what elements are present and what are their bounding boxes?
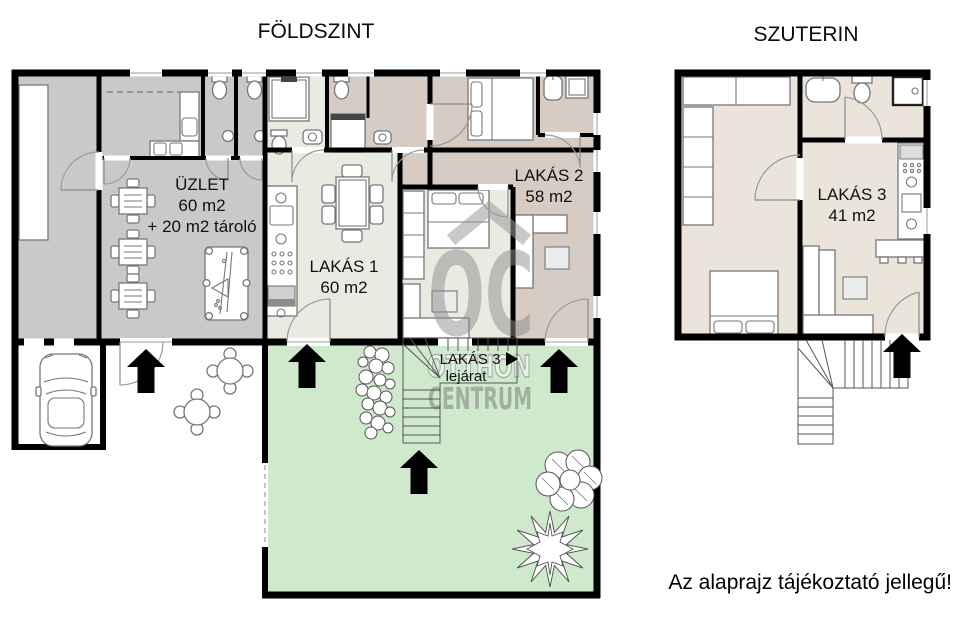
flat1-area: 60 m2 <box>320 278 367 297</box>
basement-plan <box>678 73 931 444</box>
basement-bed <box>710 271 778 337</box>
flat2-name: LAKÁS 2 <box>515 166 584 185</box>
watermark-logo: OC OTTHON CENTRUM <box>427 209 534 417</box>
floorplan-page: OC OTTHON CENTRUM LAKÁS 3 lejárat F <box>0 0 960 622</box>
disclaimer-note: Az alaprajz tájékoztató jellegű! <box>668 571 952 594</box>
pool-table <box>203 247 250 320</box>
flat2-area: 58 m2 <box>525 187 572 206</box>
flat1-name: LAKÁS 1 <box>310 257 379 276</box>
terrace-table <box>207 348 253 394</box>
floorplan-drawing: OC OTTHON CENTRUM LAKÁS 3 lejárat F <box>0 0 960 622</box>
flat3-name: LAKÁS 3 <box>818 185 887 204</box>
terrace-table <box>174 389 220 435</box>
garage <box>19 85 48 240</box>
flat3-stairs-text: lejárat <box>446 368 488 385</box>
entrance-arrow-shop-icon <box>127 349 165 393</box>
basement-stairs <box>798 340 908 444</box>
flat1-kitchen <box>266 186 297 317</box>
shop-note: + 20 m2 tároló <box>147 217 256 236</box>
watermark-monogram: OC <box>428 229 534 363</box>
watermark-word-2: CENTRUM <box>428 382 532 417</box>
flat3-stairs-name: LAKÁS 3 <box>440 351 501 368</box>
shop-area: 60 m2 <box>178 196 225 215</box>
flat2-bed <box>468 78 533 140</box>
basement-title: SZUTERIN <box>754 23 859 46</box>
parking-car <box>36 354 96 446</box>
ground-floor-title: FÖLDSZINT <box>258 20 375 43</box>
basement-bathroom <box>806 73 923 105</box>
shop-name: ÜZLET <box>175 175 229 194</box>
entrance-arrow-basement-icon <box>883 334 921 378</box>
flat3-area: 41 m2 <box>828 206 875 225</box>
